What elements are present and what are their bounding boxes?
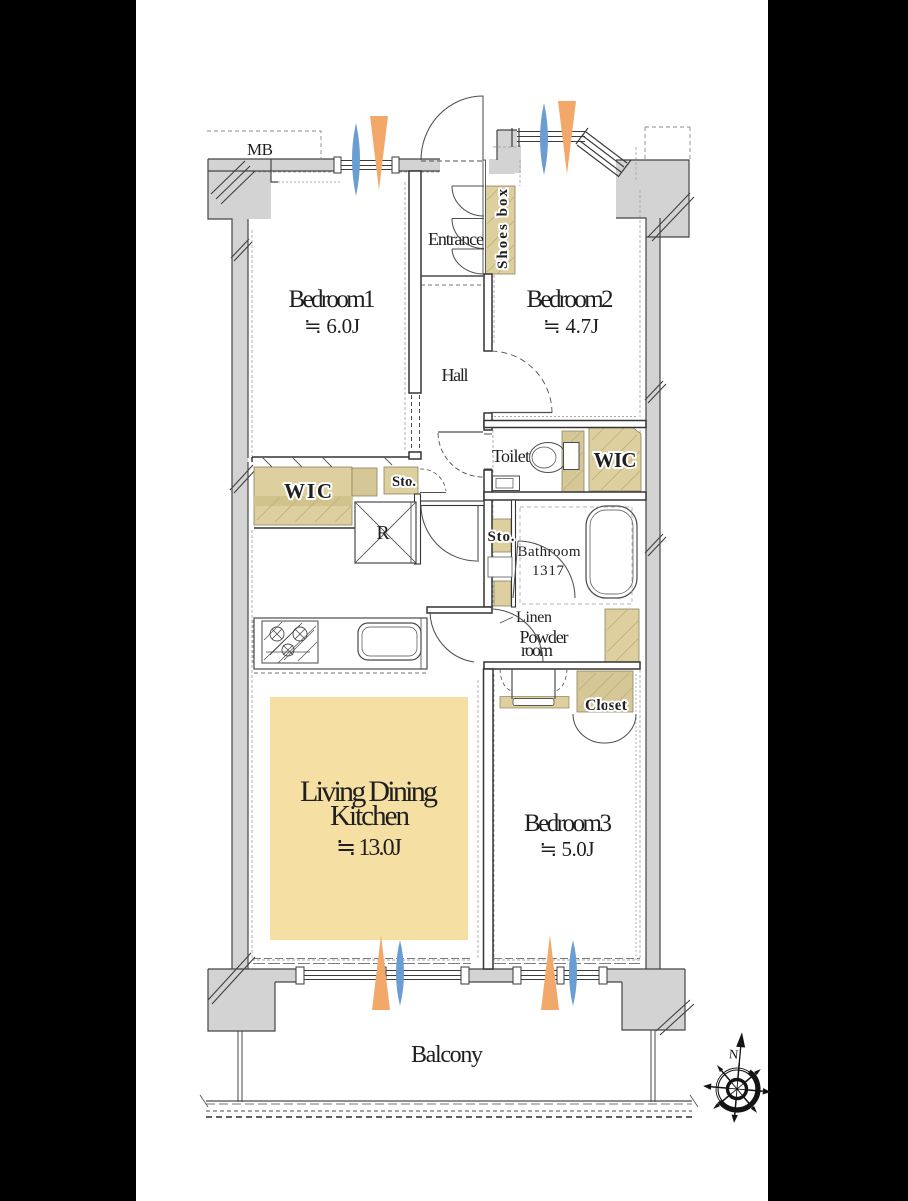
svg-text:Bedroom2: Bedroom2	[527, 286, 614, 313]
svg-text:Linen: Linen	[516, 609, 552, 626]
svg-text:R: R	[376, 522, 390, 544]
svg-text:Bedroom1: Bedroom1	[289, 286, 376, 313]
svg-text:≒ 4.7J: ≒ 4.7J	[543, 314, 599, 338]
svg-text:Entrance: Entrance	[428, 229, 484, 249]
svg-text:Toilet: Toilet	[492, 446, 530, 466]
svg-text:WIC: WIC	[284, 479, 332, 503]
svg-text:Sto.: Sto.	[392, 474, 416, 490]
svg-text:N: N	[728, 1046, 739, 1062]
svg-text:Hall: Hall	[442, 365, 469, 385]
svg-text:room: room	[521, 640, 553, 660]
svg-text:Bedroom3: Bedroom3	[524, 810, 612, 837]
svg-text:MB: MB	[247, 140, 273, 159]
svg-text:1317: 1317	[532, 563, 565, 579]
svg-text:≒ 6.0J: ≒ 6.0J	[304, 314, 360, 338]
svg-text:≒ 5.0J: ≒ 5.0J	[540, 837, 595, 861]
svg-text:WIC: WIC	[594, 448, 637, 472]
svg-text:Kitchen: Kitchen	[330, 800, 411, 832]
svg-text:≒ 13.0J: ≒ 13.0J	[336, 835, 402, 861]
svg-text:Bathroom: Bathroom	[518, 544, 581, 560]
svg-text:Balcony: Balcony	[411, 1042, 483, 1068]
svg-text:Closet: Closet	[585, 697, 628, 714]
svg-text:Sto.: Sto.	[488, 529, 515, 545]
svg-text:Shoes box: Shoes box	[495, 189, 511, 270]
